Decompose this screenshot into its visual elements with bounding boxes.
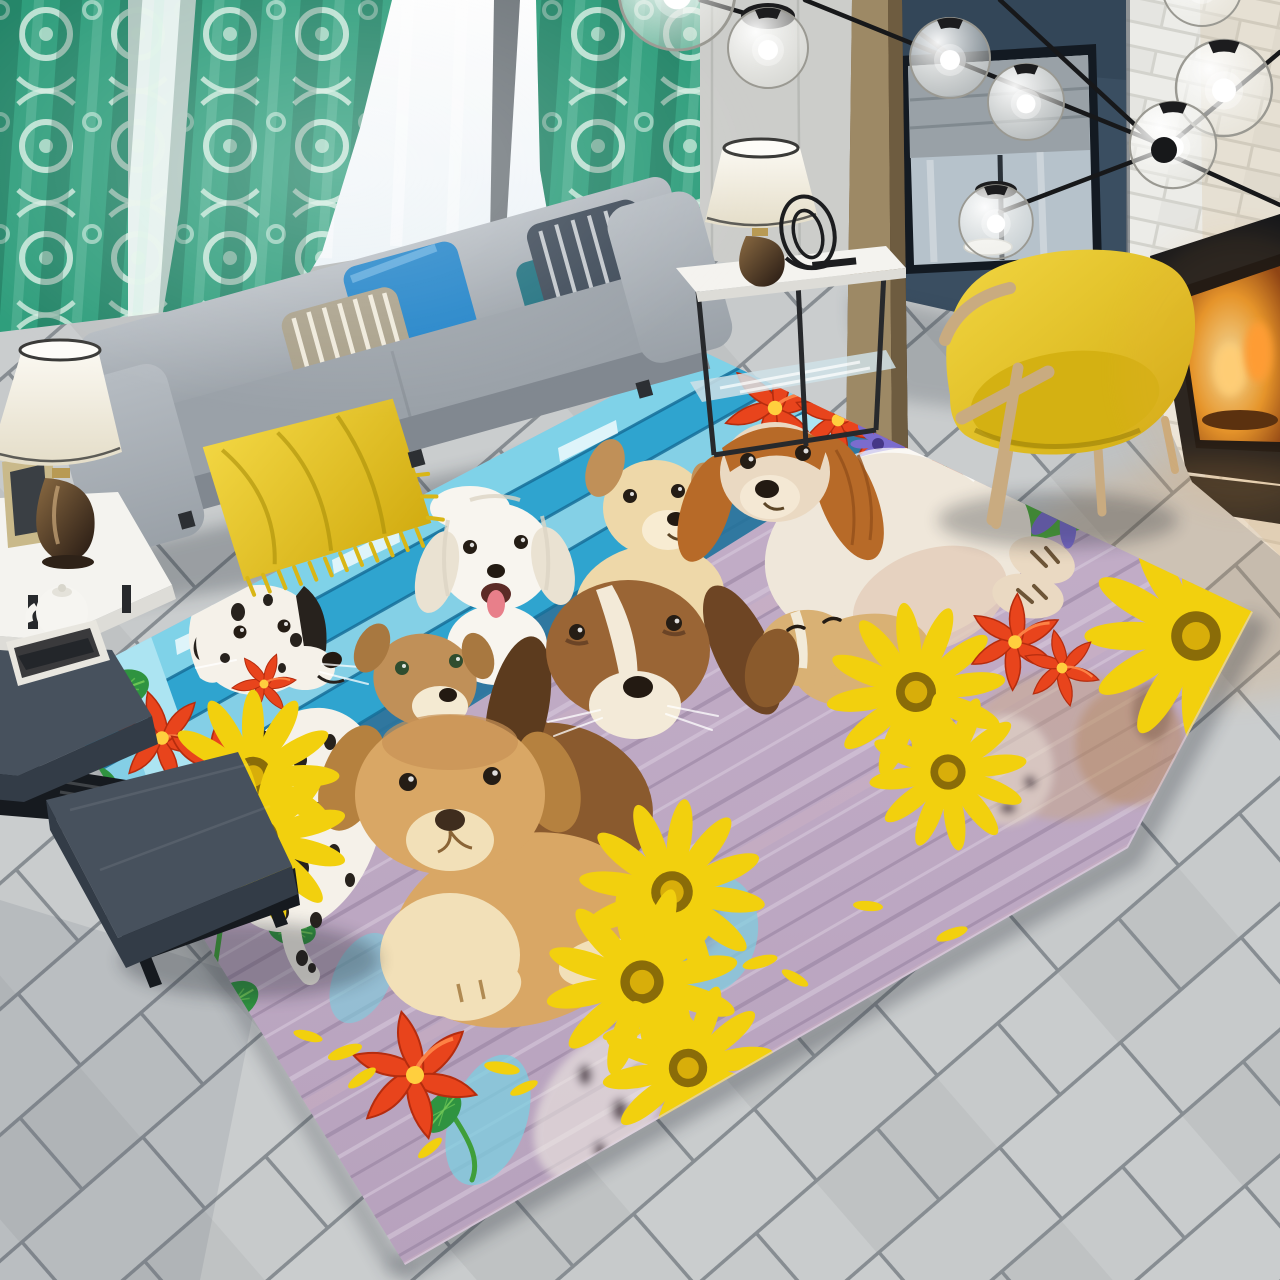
scene-svg [0,0,1280,1280]
glass-globe [988,64,1064,140]
living-room-product-photo [0,0,1280,1280]
glass-globe [910,18,990,98]
pendant-hub [1151,137,1177,163]
